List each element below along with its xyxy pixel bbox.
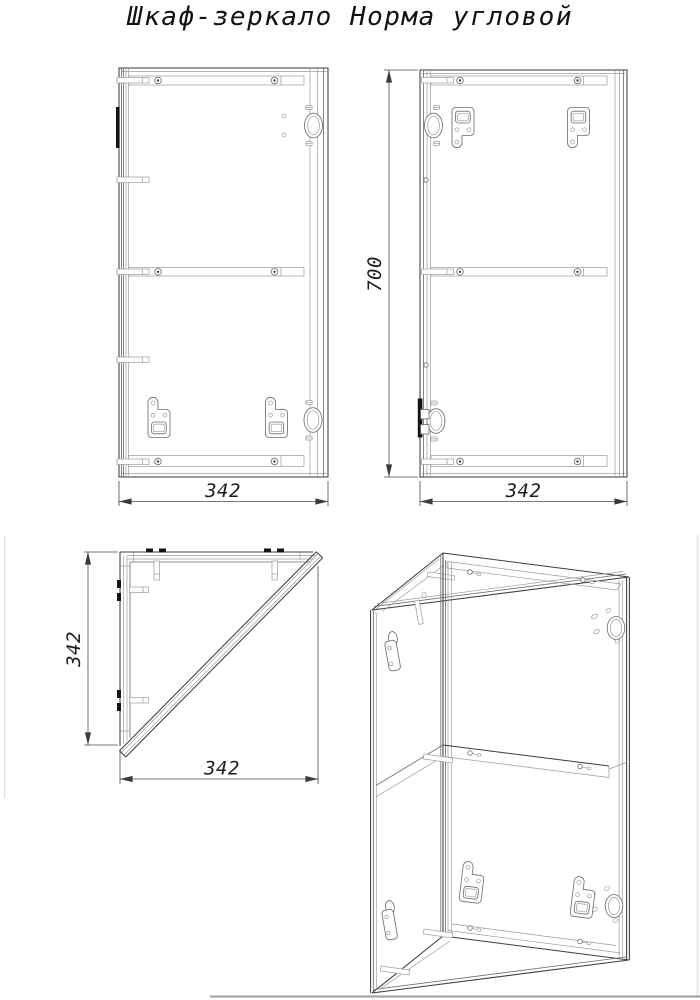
page-edge-left xyxy=(0,535,5,798)
isometric-view-drawing xyxy=(371,553,630,993)
back-view-drawing xyxy=(418,70,627,477)
front-width-label: 342 xyxy=(204,480,241,502)
plan-width-label: 342 xyxy=(203,758,240,780)
dowel xyxy=(422,78,454,84)
hinge-edge-bar xyxy=(116,107,120,148)
drawing-page: Шкаф-зеркало Норма угловой xyxy=(0,0,700,1000)
dowel xyxy=(117,78,149,84)
hinge-cup xyxy=(305,113,323,138)
dowel xyxy=(117,269,149,275)
back-width-dimension: 342 xyxy=(420,480,627,506)
plan-depth-label: 342 xyxy=(63,631,85,668)
plan-depth-dimension: 342 xyxy=(63,552,118,745)
dowel xyxy=(117,177,149,183)
keyhole-bracket xyxy=(266,397,288,437)
door-hinge xyxy=(380,900,400,941)
back-height-label: 700 xyxy=(364,256,386,292)
front-view-drawing xyxy=(116,68,328,477)
dowel xyxy=(422,269,454,275)
dowel xyxy=(117,459,149,465)
hinge-cup xyxy=(304,408,322,433)
dowel xyxy=(422,459,454,465)
hinge-cup xyxy=(425,113,443,138)
dowel xyxy=(117,357,149,363)
front-width-dimension: 342 xyxy=(119,480,328,506)
hinge-cup xyxy=(607,617,625,640)
plan-width-dimension: 342 xyxy=(120,566,318,784)
hinge-cup xyxy=(605,895,623,918)
back-width-label: 342 xyxy=(505,480,542,502)
technical-drawing: 342 xyxy=(0,0,700,1000)
keyhole-bracket xyxy=(570,876,597,919)
back-height-dimension: 700 xyxy=(364,70,418,477)
keyhole-bracket xyxy=(568,108,590,148)
keyhole-bracket xyxy=(148,397,170,437)
plan-view-drawing xyxy=(117,549,323,758)
hinge-cup xyxy=(427,409,445,434)
keyhole-bracket xyxy=(452,108,474,148)
keyhole-bracket xyxy=(459,861,486,904)
door-hinge xyxy=(383,631,403,672)
